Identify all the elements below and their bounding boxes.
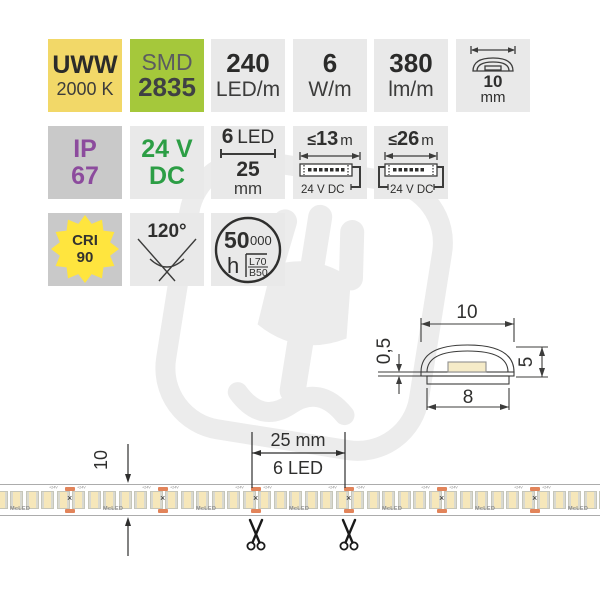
strip-width-value: 10 bbox=[484, 73, 503, 90]
voltage-type: DC bbox=[149, 163, 185, 189]
scissors-icon bbox=[247, 520, 264, 550]
run-unit: m bbox=[340, 133, 353, 149]
cut-led-count: 6 LED bbox=[222, 126, 274, 148]
strip-width-dim: 10 bbox=[91, 450, 111, 470]
lifetime-small: 000 bbox=[250, 233, 272, 248]
cut-count: 6 bbox=[222, 125, 234, 148]
run-prefix: ≤ bbox=[388, 133, 397, 150]
strip-width-unit: mm bbox=[481, 90, 506, 107]
measure-line-icon bbox=[220, 149, 276, 158]
badge-cri: CRI 90 bbox=[48, 213, 122, 286]
strip-profile-icon bbox=[466, 45, 520, 73]
max-run-strip-icon: 24 V DC bbox=[297, 151, 363, 197]
max-run-double-title: ≤26m bbox=[388, 129, 434, 150]
voltage-value: 24 V bbox=[141, 136, 192, 162]
badge-cut-step: 6 LED 25 mm bbox=[211, 126, 285, 199]
badge-max-run-double: ≤26m bbox=[374, 126, 448, 199]
beam-angle-value: 120° bbox=[147, 221, 186, 242]
dim-pcb-thickness: 0,5 bbox=[374, 338, 395, 364]
badge-color-temp: UWW 2000 K bbox=[48, 39, 122, 112]
datasheet-canvas: UWW 2000 K SMD 2835 240 LED/m 6 W/m 380 … bbox=[0, 0, 600, 600]
cut-length: 25 bbox=[236, 159, 259, 180]
run-value: 26 bbox=[397, 129, 419, 150]
power-value: 6 bbox=[323, 50, 337, 77]
color-temp-value: 2000 K bbox=[56, 80, 113, 99]
cri-label: CRI bbox=[72, 233, 98, 250]
badge-chip-type: SMD 2835 bbox=[130, 39, 204, 112]
chip-label: SMD bbox=[141, 50, 192, 74]
badge-beam-angle: 120° bbox=[130, 213, 204, 286]
beam-angle-icon: 120° bbox=[130, 213, 204, 286]
power-unit: W/m bbox=[308, 79, 351, 101]
dim-height: 5 bbox=[516, 357, 537, 368]
badge-strip-width: 10 mm bbox=[456, 39, 530, 112]
cut-count-word: LED bbox=[237, 127, 274, 148]
cri-value: 90 bbox=[77, 250, 94, 267]
cross-section-drawing: 10 0,5 5 8 bbox=[370, 296, 585, 421]
density-unit: LED/m bbox=[216, 79, 280, 101]
max-run-strip-icon: 24 V DC bbox=[378, 151, 444, 197]
lifetime-unit: h bbox=[227, 253, 239, 278]
max-run-single-title: ≤13m bbox=[307, 129, 353, 150]
scissors-icon bbox=[340, 520, 357, 550]
badge-lifetime: 50 000 h L70 B50 bbox=[211, 213, 285, 286]
run-value: 13 bbox=[316, 129, 338, 150]
run-single-feed-label: 24 V DC bbox=[301, 184, 344, 196]
color-temp-label: UWW bbox=[52, 52, 117, 78]
flux-value: 380 bbox=[389, 50, 432, 77]
run-prefix: ≤ bbox=[307, 133, 316, 150]
cri-text: CRI 90 bbox=[48, 213, 122, 286]
density-value: 240 bbox=[226, 50, 269, 77]
ip-value: 67 bbox=[71, 163, 99, 189]
ip-label: IP bbox=[73, 136, 97, 162]
badge-voltage: 24 V DC bbox=[130, 126, 204, 199]
badge-ip-rating: IP 67 bbox=[48, 126, 122, 199]
strip-pitch-dim: 25 mm bbox=[270, 430, 325, 450]
badge-max-run-single: ≤13m 24 bbox=[293, 126, 367, 199]
dim-overall-width: 10 bbox=[456, 302, 477, 323]
cut-length-unit: mm bbox=[234, 180, 262, 199]
run-double-feed-label: 24 V DC bbox=[390, 184, 433, 196]
lifetime-big: 50 bbox=[224, 227, 250, 253]
badge-luminous-flux: 380 lm/m bbox=[374, 39, 448, 112]
chip-value: 2835 bbox=[138, 74, 196, 101]
badge-power: 6 W/m bbox=[293, 39, 367, 112]
flux-unit: lm/m bbox=[388, 79, 434, 101]
strip-pitch-leds: 6 LED bbox=[273, 458, 323, 478]
strip-annotations: 10 25 mm 6 LED bbox=[0, 428, 600, 600]
lifetime-b50: B50 bbox=[249, 267, 268, 279]
badge-led-density: 240 LED/m bbox=[211, 39, 285, 112]
run-unit: m bbox=[421, 133, 434, 149]
dim-pcb-width: 8 bbox=[463, 387, 474, 408]
lifetime-circle-icon: 50 000 h L70 B50 bbox=[211, 213, 285, 286]
